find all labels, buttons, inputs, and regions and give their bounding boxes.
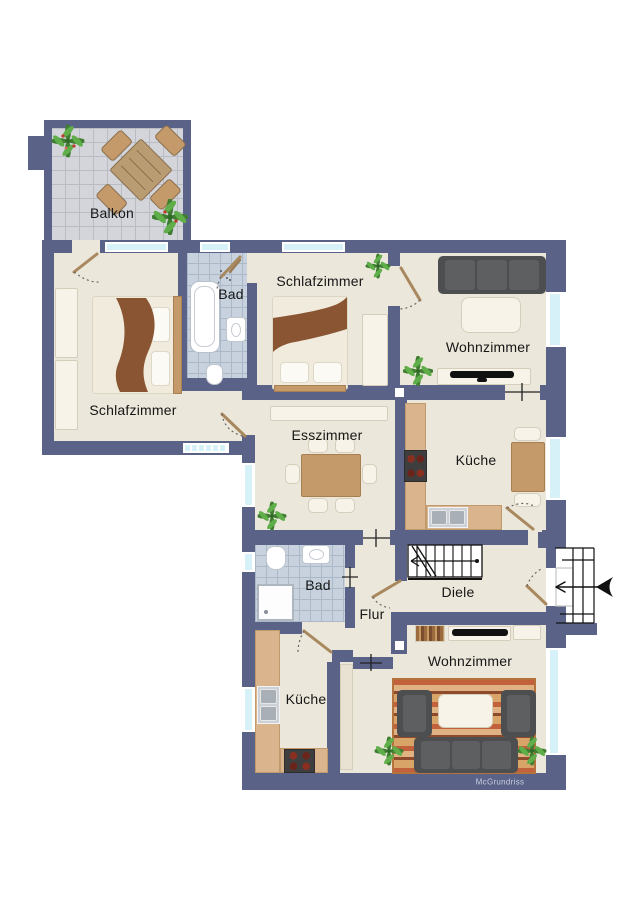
plan-linework	[0, 0, 635, 900]
room-label-schlafzimmer-links: Schlafzimmer	[89, 402, 176, 418]
internal-staircase	[408, 545, 482, 579]
room-label-bad-unten: Bad	[305, 577, 331, 593]
room-label-kueche-unten: Küche	[286, 691, 327, 707]
room-label-balkon: Balkon	[90, 205, 134, 221]
bed-blankets	[116, 297, 347, 392]
room-label-kueche-oben: Küche	[456, 452, 497, 468]
room-label-wohnzimmer-unten: Wohnzimmer	[428, 653, 512, 669]
floor-plan: Balkon Schlafzimmer Bad Schlafzimmer Woh…	[0, 0, 635, 900]
shower-head-icon	[220, 260, 240, 281]
room-label-bad-oben: Bad	[218, 286, 244, 302]
room-label-flur: Flur	[360, 606, 385, 622]
room-label-schlafzimmer-oben: Schlafzimmer	[276, 273, 363, 289]
external-staircase	[555, 548, 594, 623]
room-label-wohnzimmer-oben: Wohnzimmer	[446, 339, 530, 355]
room-label-diele: Diele	[442, 584, 475, 600]
passage-markers	[342, 383, 540, 671]
watermark: McGrundriss	[476, 778, 525, 787]
room-label-esszimmer: Esszimmer	[291, 427, 362, 443]
